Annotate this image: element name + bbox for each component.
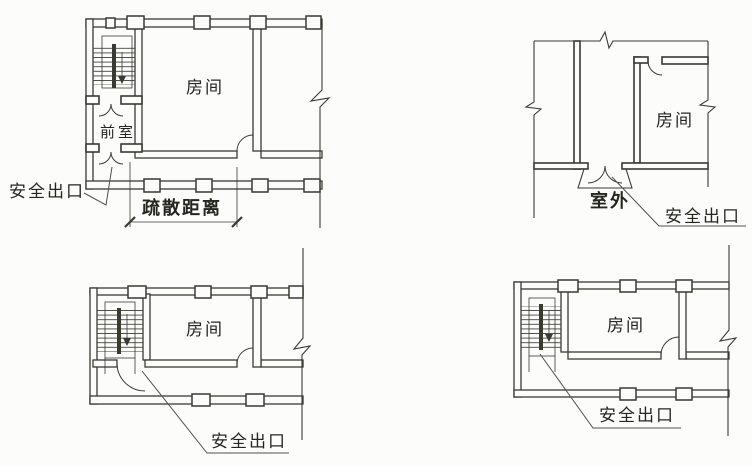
room-label: 房间 [186,78,224,98]
staircase [521,298,561,372]
double-door-leaf-arc [99,152,111,164]
corridor-wall [686,352,729,359]
left-exterior-wall [90,288,97,404]
safety-exit-label: 安全出口 [665,207,741,227]
room-divider-wall [253,27,261,151]
outdoors-label: 室外 [590,190,630,212]
safety-exit-label: 安全出口 [211,432,287,452]
plan-staircase-anteroom: 疏散距离 前室 房间 安全出口 [9,16,329,228]
plan-staircase-off-corridor: 房间 安全出口 [90,248,310,453]
room-bottom-wall [135,151,237,158]
anteroom-label: 前室 [100,123,136,141]
stair-right-wall [561,289,568,352]
stair-handrail [539,304,543,350]
room-bottom-wall [568,352,661,359]
left-exterior-wall [514,282,521,397]
break-line-right [311,19,329,228]
stair-handrail [112,44,116,88]
stair-right-wall [143,294,150,360]
room-door-swing-arc [237,348,253,364]
room-door-swing-arc [661,337,679,355]
dimension-evacuation-distance: 疏散距离 [125,162,242,227]
room-top-wall [662,57,708,64]
double-door-leaf-arc [588,166,605,183]
room-label: 房间 [656,111,694,131]
floor-plan-figure: 疏散距离 前室 房间 安全出口 房间 室外 安全出口 [0,0,752,466]
room-walls [634,57,708,163]
floor-plan-svg: 疏散距离 前室 房间 安全出口 房间 室外 安全出口 [0,0,752,466]
room-left-wall [634,57,640,163]
plan-open-staircase: 房间 安全出口 [514,245,736,436]
exterior-wall-with-exit [534,163,708,188]
room-bottom-wall [145,360,237,367]
double-door-leaf-arc [605,166,622,183]
room-door-swing-arc [237,135,253,151]
stair-handrail [117,308,121,354]
double-door-leaf-arc [111,152,123,164]
safety-exit-label: 安全出口 [599,406,675,426]
break-line-right [720,245,736,436]
room-label: 房间 [186,320,224,340]
room2-bottom-wall [261,151,322,158]
corridor-wall [574,41,580,169]
wall-piers [128,286,303,406]
plan-exit-to-outdoors: 房间 室外 安全出口 [526,32,746,227]
break-line-right [294,248,310,440]
double-door-leaf-arc [111,104,123,116]
room-right-wall [679,289,686,359]
staircase [93,36,135,88]
evacuation-distance-label: 疏散距离 [142,197,222,219]
corridor-wall [261,360,303,367]
safety-exit-label: 安全出口 [9,182,85,202]
door-jamb-hook [634,57,648,63]
stair-anteroom-right-wall [135,27,142,151]
break-line-left [526,41,541,218]
double-door-leaf-arc [99,104,111,116]
room-label: 房间 [607,316,645,336]
stair-door-swing-arc [117,363,145,391]
wall-piers [558,280,692,400]
room-door-swing-arc [648,61,662,75]
break-line-top [534,32,708,48]
room-right-wall [253,294,261,367]
outdoor-step-platform [578,169,632,188]
